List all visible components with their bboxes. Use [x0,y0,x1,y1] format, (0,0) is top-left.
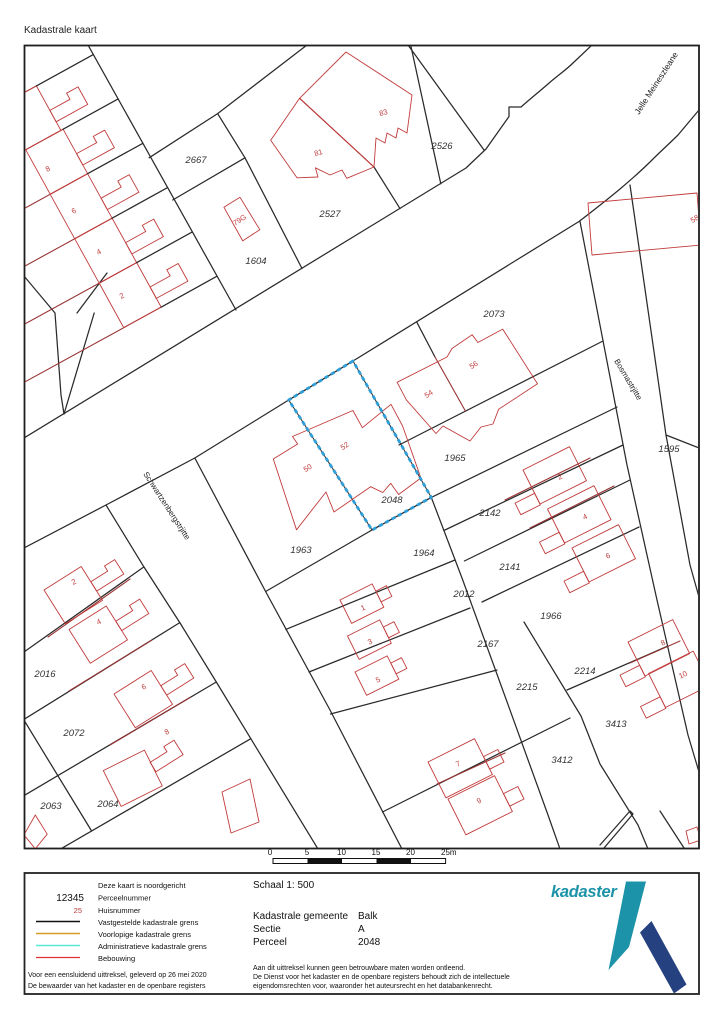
svg-text:Voorlopige kadastrale grens: Voorlopige kadastrale grens [98,930,191,939]
svg-text:Administratieve kadastrale gre: Administratieve kadastrale grens [98,942,207,951]
svg-text:2063: 2063 [39,801,62,812]
svg-text:Perceel: Perceel [253,937,287,948]
svg-text:15: 15 [372,848,381,857]
svg-text:3413: 3413 [605,719,627,730]
svg-text:Kadastrale kaart: Kadastrale kaart [24,25,97,36]
svg-text:1604: 1604 [245,256,266,267]
svg-text:2667: 2667 [184,155,207,166]
svg-text:eigendomsrechten voor, waarond: eigendomsrechten voor, waaronder het aut… [253,983,493,990]
svg-text:Bebouwing: Bebouwing [98,954,135,963]
svg-text:Aan dit uittreksel kunnen geen: Aan dit uittreksel kunnen geen betrouwba… [253,965,465,972]
svg-text:2526: 2526 [430,141,453,152]
svg-text:25m: 25m [441,848,457,857]
svg-text:1964: 1964 [413,548,434,559]
svg-text:2064: 2064 [96,799,118,810]
svg-text:2527: 2527 [318,209,341,220]
svg-text:2141: 2141 [498,562,520,573]
svg-text:2215: 2215 [515,682,538,693]
svg-text:5: 5 [305,848,310,857]
svg-text:Kadastrale gemeente: Kadastrale gemeente [253,911,349,922]
svg-text:3412: 3412 [551,755,573,766]
svg-text:De Dienst voor het kadaster en: De Dienst voor het kadaster en de openba… [253,974,510,981]
svg-text:Balk: Balk [358,911,378,922]
svg-text:1966: 1966 [540,611,562,622]
svg-text:25: 25 [74,906,82,915]
svg-text:2012: 2012 [452,589,475,600]
svg-text:12345: 12345 [56,893,84,904]
svg-text:2073: 2073 [482,309,505,320]
svg-text:2072: 2072 [62,728,85,739]
svg-text:2048: 2048 [358,937,381,948]
svg-text:De bewaarder van het kadaster: De bewaarder van het kadaster en de open… [28,983,206,990]
svg-text:Huisnummer: Huisnummer [98,906,141,915]
svg-text:Deze kaart is noordgericht: Deze kaart is noordgericht [98,881,186,890]
svg-text:1595: 1595 [658,444,680,455]
svg-text:2214: 2214 [573,666,595,677]
svg-text:1965: 1965 [444,453,466,464]
svg-text:0: 0 [268,848,273,857]
svg-text:1963: 1963 [290,545,312,556]
svg-text:2048: 2048 [380,495,403,506]
svg-text:Schaal 1: 500: Schaal 1: 500 [253,880,315,891]
svg-text:10: 10 [337,848,346,857]
svg-text:20: 20 [406,848,415,857]
svg-text:kadaster: kadaster [551,883,618,901]
svg-text:2167: 2167 [476,639,499,650]
svg-text:Voor een eensluidend uittrekse: Voor een eensluidend uittreksel, gelever… [28,972,207,979]
svg-text:A: A [358,924,365,935]
svg-text:2016: 2016 [33,669,56,680]
svg-text:Vastgestelde kadastrale grens: Vastgestelde kadastrale grens [98,918,199,927]
svg-text:2142: 2142 [478,508,501,519]
svg-text:Perceelnummer: Perceelnummer [98,894,151,903]
svg-text:Sectie: Sectie [253,924,281,935]
